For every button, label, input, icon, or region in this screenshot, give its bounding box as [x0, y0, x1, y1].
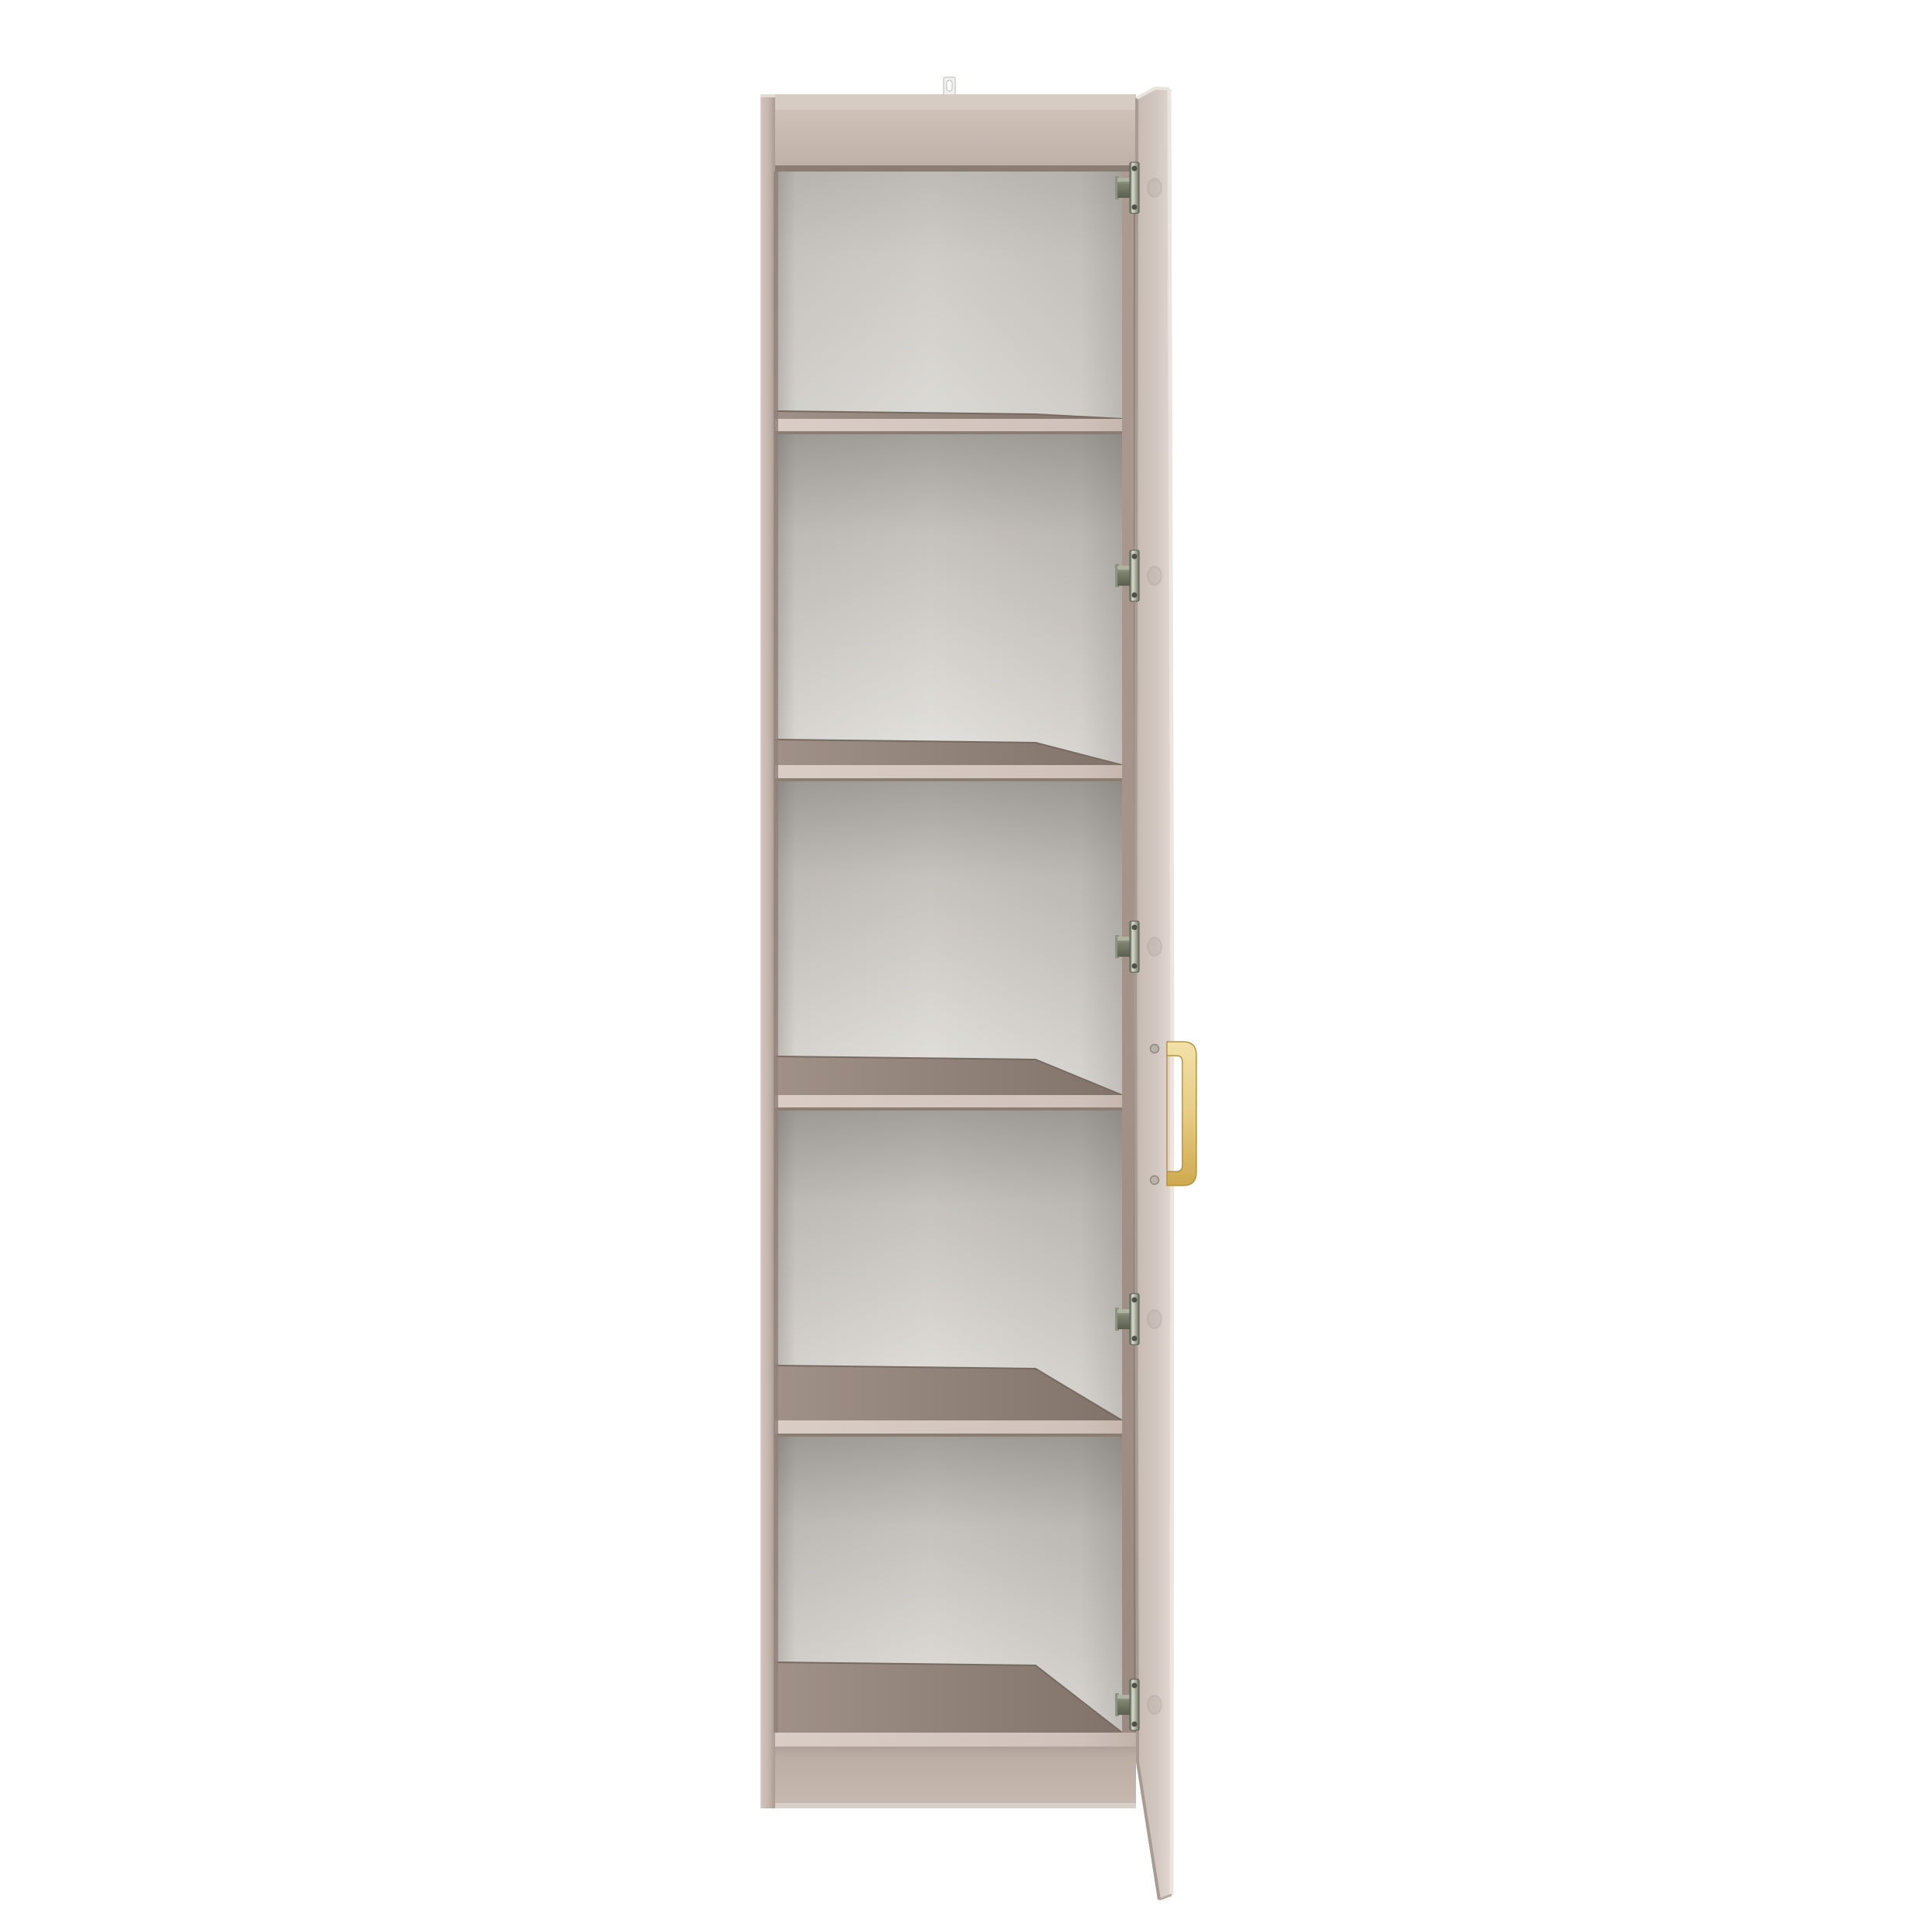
fixing-tab-slot-hole — [947, 80, 952, 91]
shelf-underside-shadow-line — [775, 431, 1122, 434]
hinge-arm-highlight — [1117, 566, 1131, 570]
top-panel-lip — [760, 94, 1136, 110]
bottom-panel-front-edge — [775, 1733, 1136, 1747]
hinge-screw — [1132, 554, 1138, 560]
top-panel-shadow-line — [775, 165, 1136, 172]
hinge-screw — [1132, 1722, 1138, 1727]
hinge-screw — [1132, 166, 1138, 172]
shelf-underside-shadow-line — [775, 1434, 1122, 1437]
hinge-arm-highlight — [1117, 1695, 1131, 1699]
shelf-3-front-edge — [775, 1095, 1136, 1107]
hinge-screw — [1132, 1336, 1138, 1342]
plinth-bottom-lip — [775, 1803, 1136, 1808]
shelf-underside-shadow-line — [775, 1107, 1122, 1111]
handle-screw-cap — [1151, 1045, 1159, 1053]
product-image — [0, 0, 1932, 1932]
left-inner-seam — [774, 172, 778, 1733]
compartment-side-shading-3 — [775, 781, 1122, 1095]
hinge-screw — [1132, 925, 1138, 930]
cabinet-render — [0, 0, 1932, 1932]
compartment-side-shading-1 — [775, 172, 1122, 419]
hinge-screw — [1132, 964, 1138, 969]
compartment-side-shading-2 — [775, 434, 1122, 765]
left-side-panel — [760, 94, 775, 1808]
hinge-screw — [1132, 1683, 1138, 1689]
hinge-screw — [1132, 593, 1138, 598]
hinge-cup-mark — [1148, 1310, 1162, 1328]
shelf-4-front-edge — [775, 1420, 1136, 1434]
hinge-arm-highlight — [1117, 937, 1131, 940]
left-side-top-edge-highlight — [760, 94, 775, 97]
hinge-screw — [1132, 205, 1138, 210]
handle-screw-cap — [1151, 1176, 1159, 1185]
hinge-cup-mark — [1148, 937, 1162, 956]
shelf-2-front-edge — [775, 765, 1136, 778]
top-panel-face — [760, 110, 1136, 165]
shelf-1-front-edge — [775, 419, 1136, 431]
hinge-cup-mark — [1148, 1696, 1162, 1714]
plinth — [775, 1747, 1136, 1806]
hinge-screw — [1132, 1298, 1138, 1303]
hinge-cup-mark — [1148, 179, 1162, 197]
hinge-cup-mark — [1148, 566, 1162, 585]
cabinet-door — [1135, 88, 1172, 1900]
hinge-arm-highlight — [1117, 1309, 1131, 1313]
hinge-arm-highlight — [1117, 178, 1131, 182]
shelf-underside-shadow-line — [775, 778, 1122, 781]
